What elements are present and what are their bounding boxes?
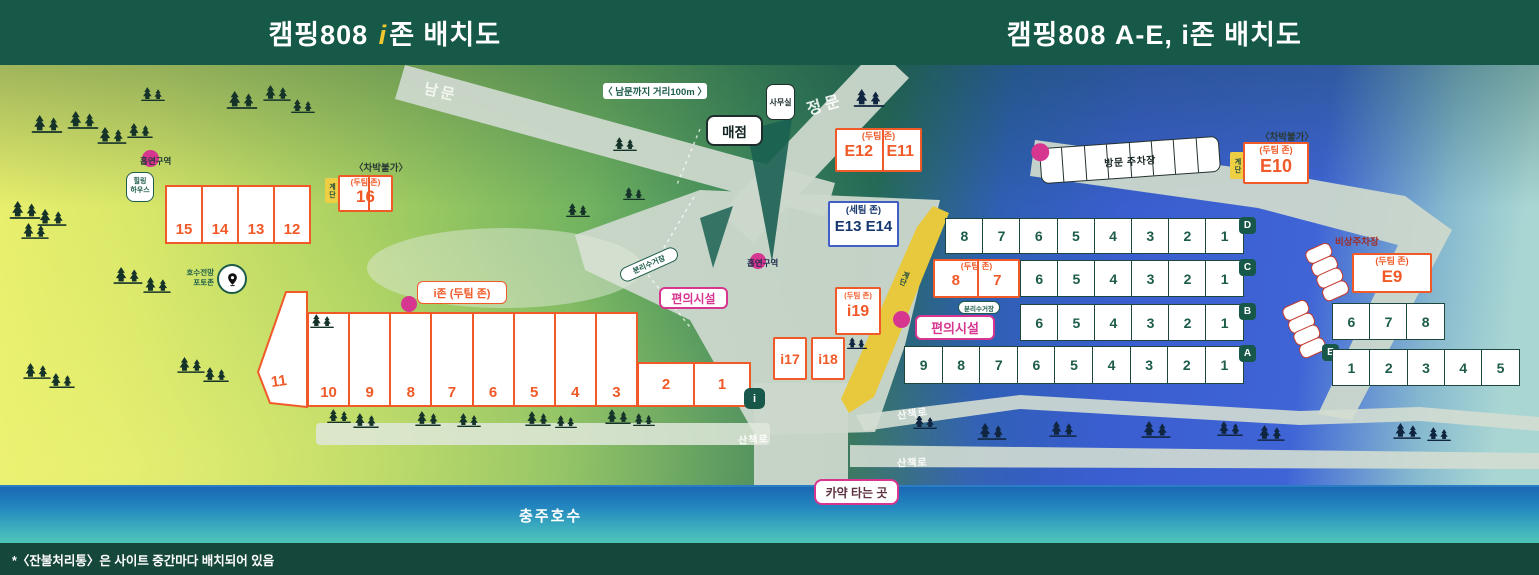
pine-trees-icon <box>37 209 66 226</box>
photo-zone-label: 호수전망 포토존 <box>170 268 214 288</box>
pine-trees-icon <box>1257 425 1284 441</box>
store-building: 매점 <box>706 115 763 146</box>
site-e12: E12 <box>837 143 880 161</box>
site-e9-box: (두팀 존) E9 <box>1352 253 1432 293</box>
site-16: 16 <box>340 188 391 207</box>
pine-trees-icon <box>21 223 48 239</box>
site-cell: 7 <box>979 346 1018 384</box>
healing-house: 힐링 하우스 <box>126 172 154 202</box>
trail-label-left: 산책로 <box>738 430 769 447</box>
office-building: 사무실 <box>766 84 795 120</box>
pine-trees-icon <box>227 91 258 109</box>
emergency-parking-stack <box>1281 300 1327 360</box>
marker-dot <box>893 311 910 328</box>
photo-zone-pin <box>217 264 247 294</box>
site-cell: 5 <box>1057 218 1096 254</box>
kayak-spot-box: 카약 타는 곳 <box>814 479 899 505</box>
pine-trees-icon <box>1217 421 1243 436</box>
site-cell: 7 <box>1369 303 1408 340</box>
site-cell: 6 <box>472 312 515 407</box>
pine-trees-icon <box>49 373 75 388</box>
map-area: 남문 정문 〈 남문까지 거리100m 〉 사무실 매점 (두팀 존) E12 … <box>0 65 1539 485</box>
site-cell: 3 <box>1131 260 1170 297</box>
facilities-center: 편의시설 <box>659 287 728 309</box>
site-cell: 4 <box>1092 346 1131 384</box>
site-cell: 8 <box>389 312 432 407</box>
lake-label: 충주호수 <box>519 505 582 526</box>
i-zone-badge: i <box>744 388 765 409</box>
pine-trees-icon <box>327 409 351 423</box>
title-left-prefix: 캠핑808 <box>268 20 376 50</box>
site-cell: 2 <box>1168 260 1207 297</box>
row-a-badge: A <box>1239 345 1256 362</box>
site-cell: 5 <box>1057 260 1096 297</box>
i-zone-low-row: 2 1 <box>637 362 751 407</box>
site-cell: 3 <box>1131 218 1170 254</box>
recycling-station-center: 분리수거장 <box>618 245 681 284</box>
pine-trees-icon <box>1427 427 1451 441</box>
pine-trees-icon <box>291 99 315 113</box>
site-e13-e14-box: (세팀 존) E13 E14 <box>828 201 899 247</box>
site-cell: 10 <box>307 312 350 407</box>
site-cell: 7 <box>430 312 473 407</box>
site-cell: 3 <box>1130 346 1169 384</box>
row-d: 87654321 <box>945 218 1244 254</box>
site-i17: i17 <box>780 351 799 367</box>
site-cell: 9 <box>348 312 391 407</box>
site-cell: 4 <box>554 312 597 407</box>
pine-trees-icon <box>143 277 170 293</box>
site-e10: E10 <box>1245 157 1307 177</box>
site-cell: 5 <box>513 312 556 407</box>
location-pin-icon <box>225 272 240 287</box>
site-cell: 9 <box>904 346 943 384</box>
site-i19: i19 <box>837 303 879 321</box>
site-cell: 4 <box>1094 260 1133 297</box>
green-wedge <box>700 206 733 268</box>
site-cell: 13 <box>237 185 275 244</box>
pine-trees-icon <box>566 203 590 217</box>
site-cell: 12 <box>273 185 311 244</box>
smoking-area-center: 흡연구역 <box>747 257 778 269</box>
site-cell: 6 <box>1020 304 1059 341</box>
lower-trail-path <box>850 445 1539 469</box>
footnote: *〈잔불처리통〉은 사이트 중간마다 배치되어 있음 <box>12 550 274 569</box>
site-i18-box: i18 <box>811 337 845 380</box>
row-b-badge: B <box>1239 303 1256 320</box>
site-cell: 5 <box>1057 304 1096 341</box>
pine-trees-icon <box>605 409 631 424</box>
site-cell: 4 <box>1444 349 1483 386</box>
site-cell: 5 <box>1054 346 1093 384</box>
site-16-box: (두팀 존) 16 <box>338 175 393 212</box>
pine-trees-icon <box>10 201 41 219</box>
footer-note-bar: *〈잔불처리통〉은 사이트 중간마다 배치되어 있음 <box>0 543 1539 575</box>
site-i19-box: (두팀 존) i19 <box>835 287 881 335</box>
site-cell: 6 <box>1019 218 1058 254</box>
pine-trees-icon <box>623 187 645 200</box>
site-cell: 6 <box>1020 260 1059 297</box>
row-e-upper: 678 <box>1332 303 1445 340</box>
page-title-left: 캠핑808 i존 배치도 <box>0 13 770 52</box>
marker-dot <box>401 296 417 312</box>
pine-trees-icon <box>1393 423 1420 439</box>
site-cell: 6 <box>1332 303 1371 340</box>
row-c: 654321 <box>1020 260 1244 297</box>
pine-trees-icon <box>1141 421 1170 438</box>
two-team-zone-label: (두팀 존) <box>837 289 879 303</box>
pine-trees-icon <box>854 89 885 107</box>
i-zone-main-row: 109876543 <box>307 312 638 407</box>
visitor-parking-row: 방문 주차장 <box>1039 136 1221 184</box>
pine-trees-icon <box>633 413 655 426</box>
header-bar: 캠핑808 i존 배치도 캠핑808 A-E, i존 배치도 <box>0 0 1539 65</box>
site-cell: 8 <box>945 218 984 254</box>
pine-trees-icon <box>97 127 126 144</box>
title-left-i: i <box>377 20 390 50</box>
stairs-box-west: 계단 <box>325 178 338 203</box>
site-cell: 4 <box>1094 304 1133 341</box>
pine-trees-icon <box>141 87 165 101</box>
row-c-badge: C <box>1239 259 1256 276</box>
site-cell: 3 <box>1131 304 1170 341</box>
south-gate-label: 남문 <box>422 77 459 105</box>
lake-strip: 충주호수 <box>0 485 1539 545</box>
pine-trees-icon <box>203 367 229 382</box>
i-zone-label: i존 (두팀 존) <box>417 281 507 304</box>
no-car-camping-west: 〈차박불가〉 <box>350 160 412 174</box>
distance-note: 〈 남문까지 거리100m 〉 <box>603 83 707 99</box>
pine-trees-icon <box>977 423 1006 440</box>
pine-trees-icon <box>555 415 577 428</box>
site-e12-e11-box: (두팀 존) E12 E11 <box>835 128 922 172</box>
two-team-zone-label: (두팀 존) <box>935 261 1018 272</box>
site-cell: 3 <box>595 312 638 407</box>
pine-trees-icon <box>113 267 142 284</box>
no-car-camping-ne: 〈차박불가〉 <box>1254 129 1320 143</box>
site-cell: 15 <box>165 185 203 244</box>
pine-trees-icon <box>127 123 153 138</box>
site-cell: 2 <box>1369 349 1408 386</box>
site-i18: i18 <box>818 351 837 367</box>
site-11-number: 11 <box>270 372 288 391</box>
pine-trees-icon <box>847 337 867 349</box>
site-cell: 2 <box>1167 346 1206 384</box>
row-west: 15141312 <box>165 185 311 244</box>
pine-trees-icon <box>353 413 379 428</box>
pine-trees-icon <box>263 85 290 101</box>
stairs-box-ne: 계단 <box>1230 152 1244 179</box>
smoking-area-west: 흡연구역 <box>140 155 171 167</box>
trail-label-lower: 산책로 <box>897 453 928 469</box>
pine-trees-icon <box>613 137 637 151</box>
site-cell: 1 <box>1332 349 1371 386</box>
row-b: 654321 <box>1020 304 1244 341</box>
site-cell: 8 <box>942 346 981 384</box>
emergency-parking-stack <box>1304 243 1350 303</box>
site-e10-box: (두팀 존) E10 <box>1243 142 1309 184</box>
site-cell: 7 <box>982 218 1021 254</box>
site-1-cell: 1 <box>693 362 751 407</box>
site-e9: E9 <box>1354 268 1430 287</box>
pine-trees-icon <box>457 413 481 427</box>
row-e-lower: 12345 <box>1332 349 1520 386</box>
pine-trees-icon <box>177 357 204 373</box>
site-i17-box: i17 <box>773 337 807 380</box>
row-a: 987654321 <box>904 346 1244 384</box>
site-cell: 2 <box>1168 218 1207 254</box>
page-title-right: 캠핑808 A-E, i존 배치도 <box>770 13 1539 52</box>
site-c8: 8 <box>935 272 977 289</box>
row-c-two-team-box: (두팀 존) 8 7 <box>933 259 1020 298</box>
pine-trees-icon <box>32 115 63 133</box>
site-cell: 2 <box>1168 304 1207 341</box>
site-e11: E11 <box>880 143 920 161</box>
recycling-station-right: 분리수거장 <box>958 301 1000 314</box>
facilities-right: 편의시설 <box>915 315 995 340</box>
trail-label-upper: 산책로 <box>896 403 928 422</box>
site-cell: 5 <box>1481 349 1520 386</box>
site-11-outline <box>258 292 307 407</box>
main-gate-label: 정문 <box>803 86 846 119</box>
emergency-parking-label: 비상주차장 <box>1335 234 1379 248</box>
left-trail-path <box>316 423 770 445</box>
site-cell: 14 <box>201 185 239 244</box>
two-team-zone-label: (두팀 존) <box>837 130 920 143</box>
site-e13-e14: E13 E14 <box>830 218 897 235</box>
site-cell: 6 <box>1017 346 1056 384</box>
site-c7: 7 <box>977 272 1019 289</box>
site-2-cell: 2 <box>637 362 695 407</box>
title-left-suffix: 존 배치도 <box>389 20 501 50</box>
site-cell: 8 <box>1406 303 1445 340</box>
pine-trees-icon <box>1049 421 1076 437</box>
campsite-map-page: 캠핑808 i존 배치도 캠핑808 A-E, i존 배치도 <box>0 0 1539 575</box>
pine-trees-icon <box>68 111 99 129</box>
site-cell: 3 <box>1407 349 1446 386</box>
pine-trees-icon <box>525 411 551 426</box>
three-team-zone-label: (세팀 존) <box>830 203 897 218</box>
pine-trees-icon <box>415 411 441 426</box>
pine-trees-icon <box>23 363 50 379</box>
upper-trail-path <box>856 395 1539 431</box>
row-d-badge: D <box>1239 217 1256 234</box>
visitor-parking-label: 방문 주차장 <box>1040 137 1220 183</box>
site-cell: 4 <box>1094 218 1133 254</box>
stairs-strip-label: 계단 <box>897 269 913 287</box>
